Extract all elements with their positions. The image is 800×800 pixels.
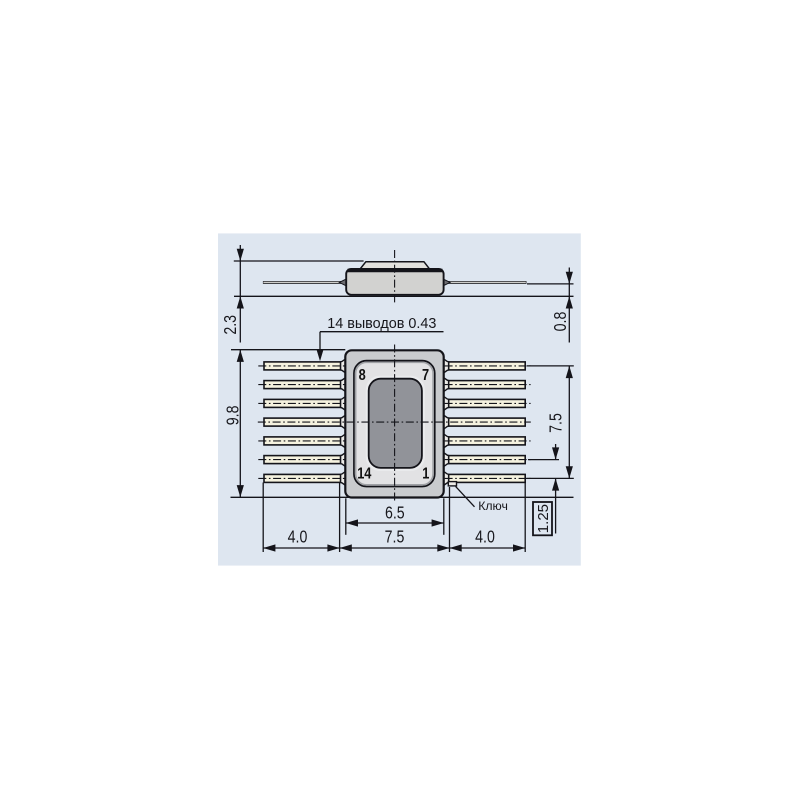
svg-text:4.0: 4.0: [475, 528, 495, 547]
svg-text:1: 1: [422, 465, 429, 483]
svg-text:6.5: 6.5: [385, 504, 405, 523]
svg-text:9.8: 9.8: [224, 405, 243, 425]
svg-text:8: 8: [359, 367, 366, 385]
svg-text:7: 7: [422, 367, 429, 385]
svg-text:14: 14: [357, 465, 371, 483]
svg-text:Ключ: Ключ: [478, 499, 508, 513]
svg-text:0.8: 0.8: [552, 311, 571, 331]
svg-text:1.25: 1.25: [535, 504, 552, 533]
svg-text:2.3: 2.3: [222, 315, 241, 335]
svg-text:7.5: 7.5: [547, 413, 566, 433]
svg-text:14 выводов 0.43: 14 выводов 0.43: [327, 316, 436, 332]
svg-text:4.0: 4.0: [288, 528, 308, 547]
svg-text:7.5: 7.5: [385, 528, 405, 547]
